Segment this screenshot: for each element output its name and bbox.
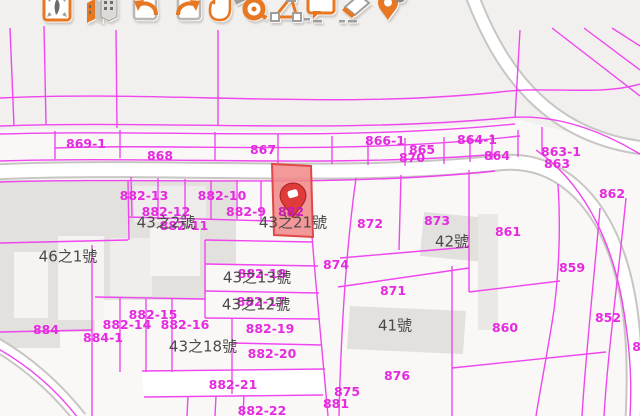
map-tip-icon[interactable] xyxy=(300,0,340,27)
eraser-icon[interactable] xyxy=(335,0,375,27)
buildings-3d-icon[interactable] xyxy=(81,0,121,27)
zoom-full-extent-icon[interactable] xyxy=(37,0,77,27)
previous-view-icon[interactable] xyxy=(126,0,166,27)
toolbar xyxy=(0,0,640,30)
map-application: 869-1868867866-1865864-1870864863-186386… xyxy=(0,0,640,416)
measure-area-icon[interactable] xyxy=(265,0,305,27)
map-canvas[interactable] xyxy=(0,0,640,416)
measure-distance-icon[interactable] xyxy=(230,0,270,27)
clear-marker-icon[interactable] xyxy=(370,0,410,27)
